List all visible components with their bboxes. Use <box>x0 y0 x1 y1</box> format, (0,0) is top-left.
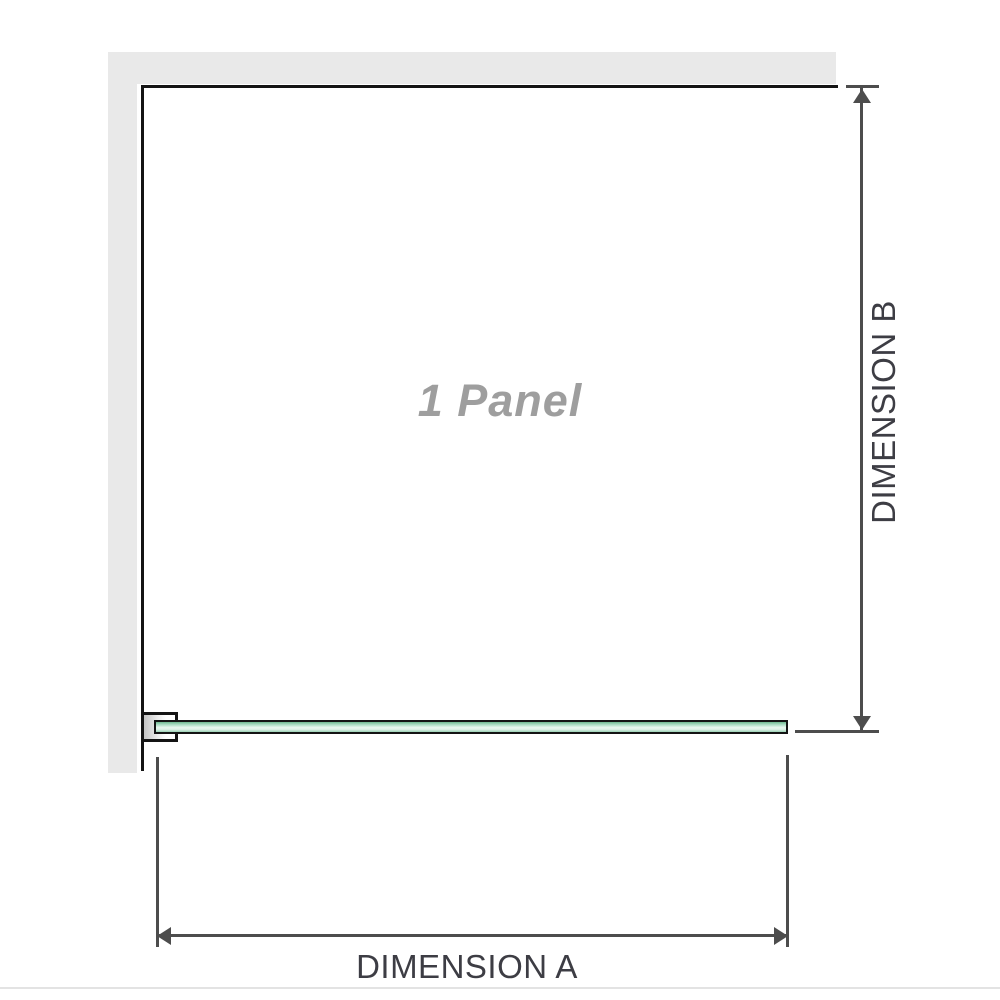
wall-top <box>108 52 836 84</box>
arrow-up-icon <box>853 89 871 103</box>
dimension-b-label: DIMENSION B <box>865 300 903 524</box>
arrow-left-icon <box>157 927 171 945</box>
dimension-b-line <box>860 87 863 731</box>
bottom-divider <box>0 987 1000 989</box>
dimension-a-right-extension-line <box>786 755 789 947</box>
dimension-b-bottom-tick <box>795 730 879 733</box>
wall-inner-edge-left <box>141 85 144 771</box>
dimension-a-left-extension-line <box>156 757 159 947</box>
arrow-right-icon <box>774 927 788 945</box>
panel-count-label: 1 Panel <box>418 375 583 427</box>
dimension-a-label: DIMENSION A <box>356 948 578 986</box>
shower-panel-dimension-diagram: 1 Panel DIMENSION B DIMENSION A <box>0 0 1000 1000</box>
wall-inner-edge-top <box>141 85 838 88</box>
glass-panel <box>154 720 788 734</box>
dimension-a-line <box>158 934 787 937</box>
arrow-down-icon <box>853 716 871 730</box>
wall-left <box>108 52 137 773</box>
